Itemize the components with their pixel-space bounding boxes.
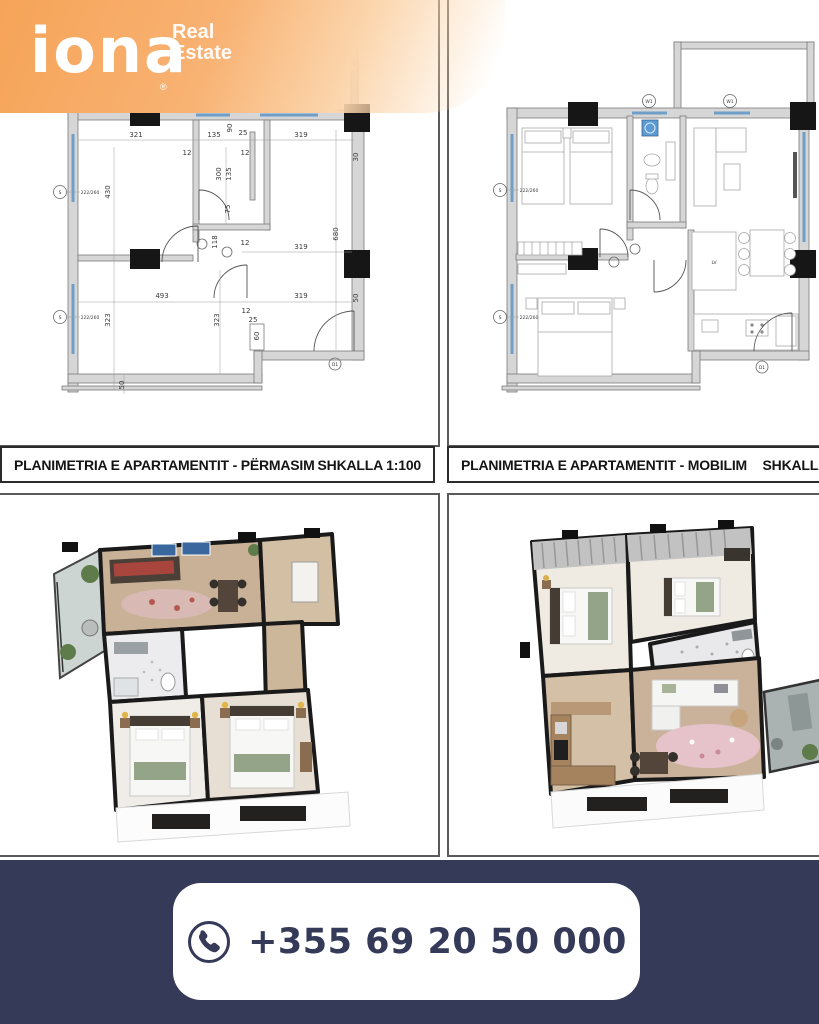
kitchen [543, 670, 635, 794]
caption-title: PLANIMETRIA E APARTAMENTIT - MOBILIM [461, 457, 747, 473]
flyer-page: 324 20 180 20 20 321 135 90 25 319 30 12… [0, 0, 819, 1024]
living-room [630, 658, 764, 780]
marker-label: 222/260 [520, 315, 539, 321]
marker-label: S [59, 315, 62, 321]
dim-label: 135 [225, 167, 233, 180]
marker-label: D1 [332, 362, 338, 368]
dim-label: 50 [118, 381, 126, 390]
dim-label: 12 [183, 149, 192, 157]
marker-label: 222/260 [81, 315, 100, 321]
dim-label: 75 [224, 205, 232, 214]
marker-label: W1 [726, 99, 733, 105]
dim-label: 680 [332, 227, 340, 240]
dim-label: 135 [207, 131, 220, 139]
dim-label: 319 [294, 243, 307, 251]
dim-label: 323 [213, 313, 221, 326]
dim-label: 323 [104, 313, 112, 326]
brand-tagline: RealEstate [172, 22, 232, 64]
panel-plan-furnished: S 222/260 S 222/260 W1 W1 LV D1 [447, 0, 819, 447]
dim-label: 12 [241, 239, 250, 247]
dim-label: 430 [104, 185, 112, 198]
bedroom-2 [202, 690, 318, 800]
marker-label: 222/260 [520, 188, 539, 194]
dim-label: 60 [253, 332, 261, 341]
bedroom-1 [110, 696, 208, 810]
brand-header: iona ® RealEstate [0, 0, 505, 113]
panel-3d-render-1 [0, 493, 440, 857]
render-3d-isometric-1 [0, 495, 438, 855]
caption-bar-dimensions: PLANIMETRIA E APARTAMENTIT - PËRMASIM SH… [0, 446, 435, 483]
dim-label: 12 [242, 307, 251, 315]
balcony [764, 680, 819, 772]
bedroom-1 [532, 535, 631, 676]
dim-label: 12 [241, 149, 250, 157]
dim-label: 493 [155, 292, 168, 300]
phone-icon [186, 919, 232, 965]
caption-scale: SHKALLA 1:100 [318, 457, 421, 473]
dim-label: 321 [129, 131, 142, 139]
caption-scale: SHKALLA 1:100 [763, 457, 819, 473]
panel-3d-render-2 [447, 493, 819, 857]
floor-plan-furnished: S 222/260 S 222/260 W1 W1 LV D1 [449, 0, 819, 445]
marker-label: S [499, 315, 502, 321]
bathroom [104, 629, 186, 702]
marker-label: 222/260 [81, 190, 100, 196]
brand-tagline-line1: Real [172, 21, 214, 43]
marker-label: S [59, 190, 62, 196]
phone-number: +355 69 20 50 000 [248, 922, 627, 962]
dim-label: 50 [352, 294, 360, 303]
marker-label: W1 [645, 99, 652, 105]
entry-hall [260, 534, 338, 705]
dim-label: 30 [352, 153, 360, 162]
dim-label: 90 [226, 124, 234, 133]
caption-bar-furnished: PLANIMETRIA E APARTAMENTIT - MOBILIM SHK… [447, 446, 819, 483]
marker-label: D1 [759, 365, 765, 371]
living-room [100, 540, 264, 634]
caption-title: PLANIMETRIA E APARTAMENTIT - PËRMASIM [14, 457, 315, 473]
marker-label: S [499, 188, 502, 194]
brand-tagline-line2: Estate [172, 42, 232, 64]
registered-mark: ® [160, 82, 167, 92]
phone-banner[interactable]: +355 69 20 50 000 [173, 883, 640, 1000]
balcony [54, 550, 106, 678]
dim-label: 319 [294, 292, 307, 300]
footer-bar: +355 69 20 50 000 [0, 860, 819, 1024]
dim-label: 25 [249, 316, 258, 324]
render-3d-isometric-2 [449, 495, 819, 855]
brand-logo: iona [30, 14, 188, 87]
dim-label: 319 [294, 131, 307, 139]
dim-label: 118 [211, 235, 219, 248]
dim-label: 25 [239, 129, 248, 137]
dim-label: 300 [215, 167, 223, 180]
